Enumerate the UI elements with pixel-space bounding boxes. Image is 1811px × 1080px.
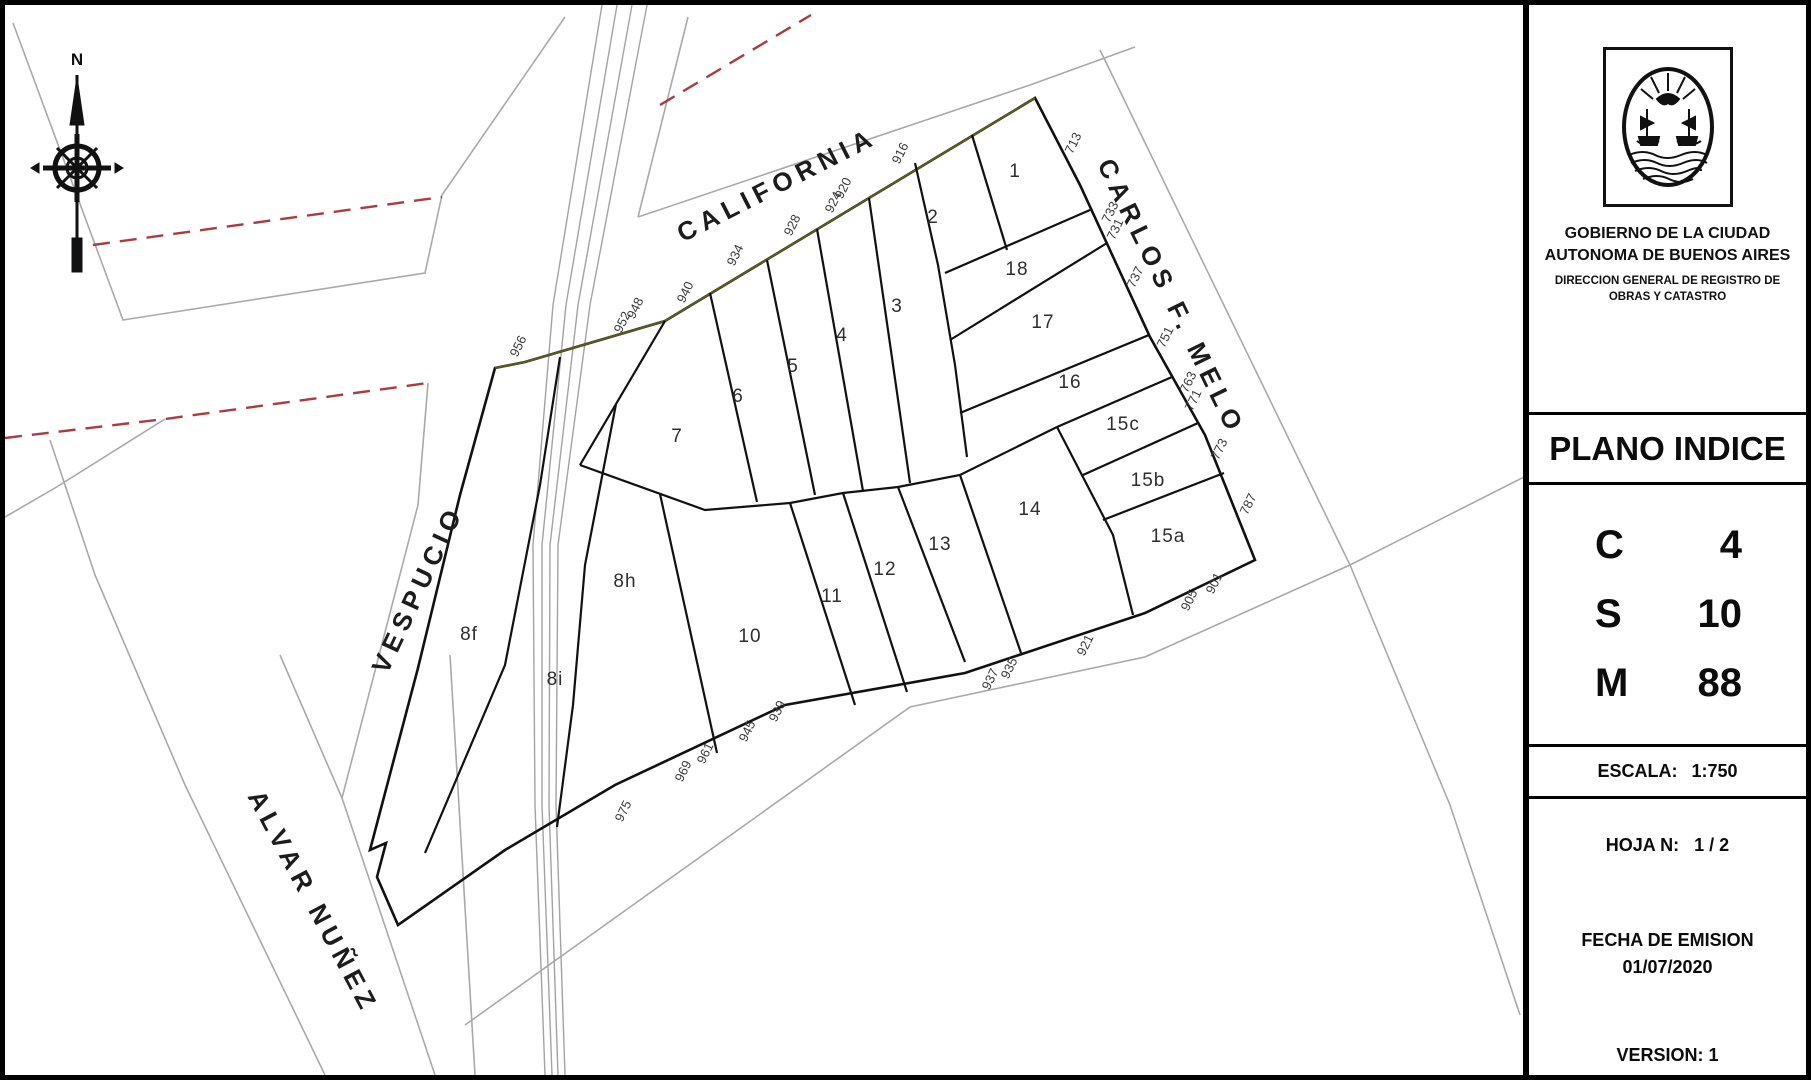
parcel-number-label: 10: [738, 626, 761, 648]
csm-key: M: [1595, 661, 1628, 706]
map-drawing: N: [5, 5, 1528, 1075]
parcel-number-label: 2: [927, 207, 939, 229]
parcel-number-label: 15c: [1106, 414, 1140, 436]
csm-row-m: M88: [1595, 661, 1754, 706]
csm-row-c: C4: [1595, 523, 1754, 568]
parcel-number-label: 17: [1031, 312, 1054, 334]
org-name-line2: AUTONOMA DE BUENOS AIRES: [1529, 245, 1806, 267]
version-label: VERSION:: [1616, 1045, 1703, 1065]
parcel-number-label: 8i: [547, 669, 564, 691]
parcel-number-label: 8f: [460, 624, 478, 646]
title-block-panel: GOBIERNO DE LA CIUDAD AUTONOMA DE BUENOS…: [1523, 5, 1806, 1075]
version-value: 1: [1709, 1045, 1719, 1065]
parcel-number-label: 13: [928, 534, 951, 556]
parcel-number-label: 14: [1018, 499, 1041, 521]
parcel-number-label: 15a: [1151, 526, 1186, 548]
csm-value: 10: [1698, 592, 1755, 637]
issue-date-label: FECHA DE EMISION: [1529, 927, 1806, 954]
compass-north-label: N: [71, 50, 83, 69]
parcel-number-label: 11: [821, 586, 843, 608]
csm-key: S: [1595, 592, 1622, 637]
parcel-number-label: 8h: [613, 571, 636, 593]
parcel-number-label: 12: [873, 559, 896, 581]
org-name-line1: GOBIERNO DE LA CIUDAD: [1529, 223, 1806, 245]
issue-date-value: 01/07/2020: [1529, 954, 1806, 981]
parcel-number-label: 16: [1058, 372, 1081, 394]
panel-title-section: PLANO INDICE: [1529, 415, 1806, 485]
scale-label: ESCALA:: [1597, 761, 1677, 782]
org-dept-line2: OBRAS Y CATASTRO: [1529, 289, 1806, 305]
parcel-number-label: 5: [787, 356, 799, 378]
sheet-number-label: HOJA N:: [1606, 835, 1679, 855]
csm-row-s: S10: [1595, 592, 1754, 637]
parcel-boundaries: [425, 135, 1224, 853]
buenos-aires-coat-of-arms-icon: [1603, 47, 1733, 207]
parcel-number-label: 15b: [1131, 470, 1166, 492]
panel-csm-section: C4S10M88: [1529, 485, 1806, 747]
panel-scale-section: ESCALA: 1:750: [1529, 747, 1806, 799]
csm-value: 88: [1698, 661, 1755, 706]
plano-indice-sheet: N CALIFORNIACARLOS F. MELOVESPUCIOALVAR …: [0, 0, 1811, 1080]
sheet-number-value: 1 / 2: [1694, 835, 1729, 855]
parcel-number-label: 3: [891, 296, 903, 318]
parcel-number-label: 7: [671, 426, 683, 448]
parcel-number-label: 4: [836, 325, 848, 347]
panel-meta-section: HOJA N: 1 / 2 FECHA DE EMISION 01/07/202…: [1529, 799, 1806, 1080]
parcel-number-label: 6: [732, 386, 744, 408]
parcel-number-label: 18: [1005, 259, 1028, 281]
org-dept-line1: DIRECCION GENERAL DE REGISTRO DE: [1529, 273, 1806, 289]
panel-header-section: GOBIERNO DE LA CIUDAD AUTONOMA DE BUENOS…: [1529, 47, 1806, 415]
scale-value: 1:750: [1691, 761, 1737, 782]
cadastral-map: N CALIFORNIACARLOS F. MELOVESPUCIOALVAR …: [5, 5, 1528, 1075]
csm-key: C: [1595, 523, 1624, 568]
parcel-number-label: 1: [1009, 161, 1021, 183]
csm-value: 4: [1720, 523, 1754, 568]
sheet-title: PLANO INDICE: [1549, 430, 1786, 468]
